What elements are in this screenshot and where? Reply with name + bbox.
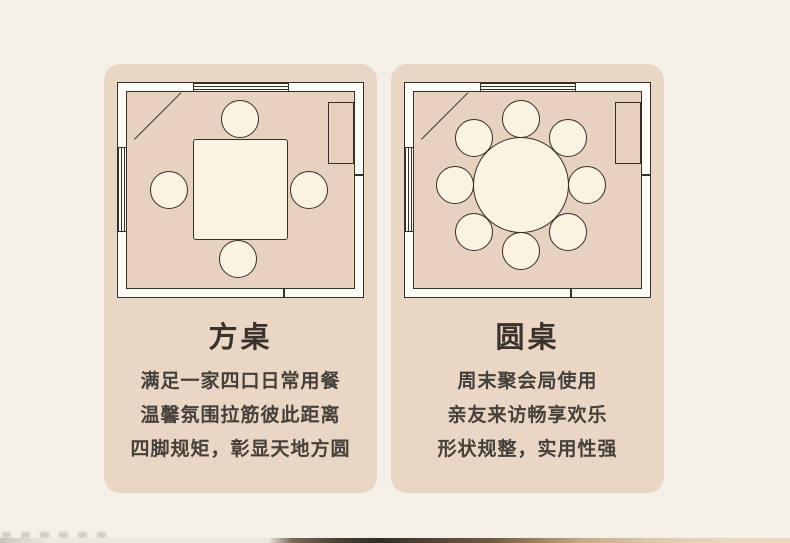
wall-joint-tick [355,174,363,176]
window-symbol-top [480,83,576,91]
chair [549,119,587,157]
square-table-floor-plan [117,82,364,298]
chair [455,119,493,157]
chair [150,171,188,209]
chair [221,100,259,138]
chair [502,100,540,138]
card-description: 满足一家四口日常用餐 温馨氛围拉筋彼此距离 四脚规矩，彰显天地方圆 [104,371,377,473]
description-line: 形状规整，实用性强 [391,439,664,460]
wall-joint-tick [642,174,650,176]
description-line: 满足一家四口日常用餐 [104,371,377,392]
card-description: 周末聚会局使用 亲友来访畅享欢乐 形状规整，实用性强 [391,371,664,473]
chair [436,166,474,204]
description-line: 亲友来访畅享欢乐 [391,405,664,426]
description-line: 四脚规矩，彰显天地方圆 [104,439,377,460]
cabinet-symbol [328,102,354,164]
window-symbol-left [405,147,413,232]
chair [290,171,328,209]
chair [219,240,257,278]
chair [568,166,606,204]
card-title: 圆桌 [391,314,664,356]
next-section-edge [0,538,790,543]
chair [549,213,587,251]
round-table-floor-plan [404,82,651,298]
description-line: 温馨氛围拉筋彼此距离 [104,405,377,426]
description-line: 周末聚会局使用 [391,371,664,392]
infographic-canvas: 方桌 满足一家四口日常用餐 温馨氛围拉筋彼此距离 四脚规矩，彰显天地方圆 [0,0,790,543]
window-symbol-left [118,147,126,232]
wall-joint-tick [283,289,285,297]
square-table-card: 方桌 满足一家四口日常用餐 温馨氛围拉筋彼此距离 四脚规矩，彰显天地方圆 [104,64,377,493]
cabinet-symbol [615,102,641,164]
chair [502,232,540,270]
chair [455,213,493,251]
wall-joint-tick [570,289,572,297]
card-title: 方桌 [104,314,377,356]
square-table [193,139,288,240]
round-table-card: 圆桌 周末聚会局使用 亲友来访畅享欢乐 形状规整，实用性强 [391,64,664,493]
window-symbol-top [193,83,289,91]
